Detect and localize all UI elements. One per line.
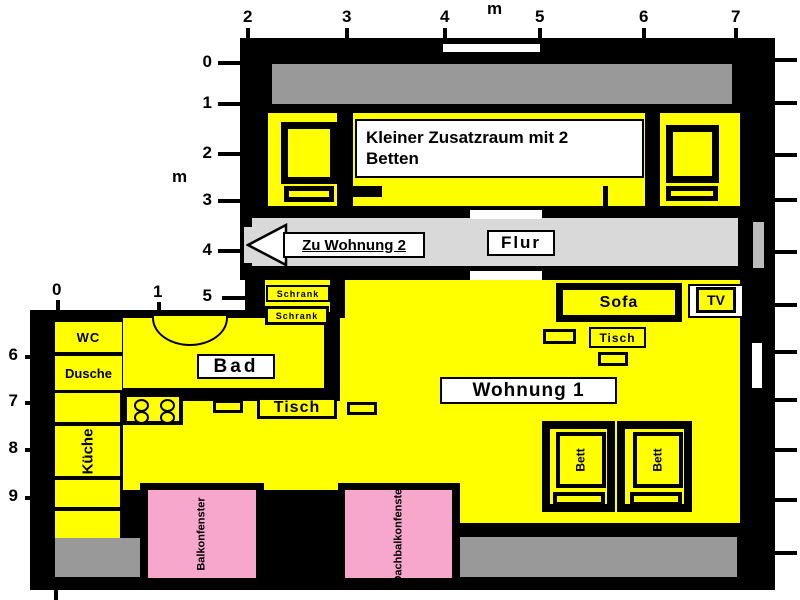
ruler-right-tick	[775, 303, 797, 307]
room-wc-label: WC	[77, 330, 101, 345]
living-table: Tisch	[589, 327, 646, 348]
extra-room-pillow-left	[284, 186, 334, 202]
ruler-left-tick	[218, 102, 242, 106]
ruler-left-1: 1	[192, 94, 212, 112]
ruler-left-tick	[218, 152, 242, 156]
dining-table-label: Tisch	[274, 399, 321, 417]
ruler-top-tick	[642, 28, 646, 42]
living-chair	[543, 329, 576, 344]
ruler-right-tick	[775, 58, 797, 62]
ruler-top-tick	[443, 28, 447, 42]
wardrobe-2-label: Schrank	[276, 311, 319, 321]
upper-terrace	[272, 64, 732, 104]
extra-room-label-text: Kleiner Zusatzraum mit 2 Betten	[366, 128, 568, 168]
ruler-right-tick	[775, 350, 797, 354]
ruler-top-unit: m	[487, 0, 502, 18]
ruler-right-tick	[775, 250, 797, 254]
ruler-left-tick	[218, 249, 242, 253]
apartment-title-box: Wohnung 1	[440, 377, 617, 404]
ruler-left-7: 7	[2, 392, 18, 410]
ruler-top-tick	[246, 28, 250, 42]
dining-table: Tisch	[257, 397, 337, 419]
ruler-top-7: 7	[731, 8, 740, 26]
room-shower-label: Dusche	[65, 366, 112, 381]
ruler-right-tick	[775, 153, 797, 157]
apartment-title: Wohnung 1	[472, 380, 584, 402]
ruler-left-0: 0	[192, 53, 212, 71]
bed-1: Bett	[542, 421, 615, 512]
ruler-left-5: 5	[192, 287, 212, 305]
floor-plan: m 2 3 4 5 6 7 m 0 1 2 3 4 5 6 7 8 9 0 1	[0, 0, 800, 600]
extra-room-divider-left	[337, 113, 353, 206]
ruler-top-tick	[345, 28, 349, 42]
right-wall-window	[752, 343, 762, 388]
sofa: Sofa	[556, 283, 682, 322]
ruler-left-unit: m	[172, 168, 187, 186]
dining-chair	[347, 402, 377, 415]
extra-room-label: Kleiner Zusatzraum mit 2 Betten	[355, 119, 644, 178]
exit-label: Zu Wohnung 2	[283, 232, 425, 258]
door-jamb	[353, 186, 382, 197]
roof-balcony-window: Dachbalkonfenster	[345, 490, 452, 578]
wardrobe-2: Schrank	[265, 306, 329, 325]
room-bath-label: Bad	[214, 356, 259, 378]
kitchen-counter	[55, 511, 120, 538]
kitchen-counter	[55, 393, 120, 422]
ruler-inner-tick	[56, 300, 60, 310]
roof-balcony-window-label: Dachbalkonfenster	[393, 484, 405, 583]
ruler-left-tick	[222, 296, 246, 300]
ruler-inner-tick	[157, 302, 161, 312]
ruler-right-tick	[775, 198, 797, 202]
bed-1-label: Bett	[574, 448, 588, 471]
ruler-left-tick	[25, 355, 45, 359]
burner-icon	[134, 411, 149, 424]
ruler-right-tick	[775, 398, 797, 402]
stove	[123, 393, 183, 425]
balcony-strip-right	[458, 537, 737, 577]
tv-label: TV	[707, 292, 725, 308]
ruler-top-tick	[734, 28, 738, 42]
door-jamb	[603, 186, 608, 206]
ruler-left-4: 4	[192, 241, 212, 259]
ruler-top-5: 5	[535, 8, 544, 26]
ruler-top-6: 6	[639, 8, 648, 26]
corridor-door-top	[470, 210, 542, 219]
ruler-left-tick	[218, 61, 242, 65]
extra-room-pillow-right	[666, 186, 718, 201]
ruler-left-3: 3	[192, 191, 212, 209]
ruler-top-3: 3	[342, 8, 351, 26]
ruler-left-2: 2	[192, 144, 212, 162]
room-shower: Dusche	[55, 356, 122, 390]
balcony-window: Balkonfenster	[148, 490, 256, 578]
balcony-window-label: Balkonfenster	[196, 497, 208, 570]
extra-room-bed-right	[666, 125, 719, 183]
bed-2: Bett	[617, 421, 692, 512]
ruler-top-tick	[538, 28, 542, 42]
ruler-left-tick	[25, 401, 45, 405]
top-wall-window	[443, 44, 540, 52]
bed-2-pillow	[630, 492, 682, 506]
ruler-left-6: 6	[2, 346, 18, 364]
living-chair	[598, 352, 628, 366]
room-bath-label-box: Bad	[197, 354, 275, 379]
dining-chair	[213, 400, 243, 413]
wardrobe-1-label: Schrank	[277, 289, 320, 299]
living-table-label: Tisch	[599, 331, 635, 345]
room-kitchen-label: Küche	[79, 428, 96, 474]
bed-2-label: Bett	[651, 448, 665, 471]
ruler-left-8: 8	[2, 439, 18, 457]
ruler-left-tick	[218, 199, 242, 203]
burner-icon	[160, 411, 175, 424]
corridor-right-window	[753, 222, 764, 268]
ruler-right-tick	[775, 101, 797, 105]
kitchen-counter	[55, 480, 120, 507]
balcony-strip-left	[55, 538, 140, 577]
corridor-label: Flur	[487, 230, 555, 256]
wardrobe-1: Schrank	[266, 285, 330, 302]
ruler-top-2: 2	[243, 8, 252, 26]
ruler-inner-1: 1	[153, 283, 162, 301]
sofa-label: Sofa	[600, 294, 639, 312]
ruler-bottom-tick	[54, 590, 58, 600]
bed-1-mattress: Bett	[556, 432, 606, 488]
corridor-door-bottom	[470, 271, 542, 280]
ruler-left-9: 9	[2, 487, 18, 505]
ruler-right-tick	[775, 448, 797, 452]
ruler-right-tick	[775, 551, 797, 555]
ruler-left-tick	[25, 448, 45, 452]
ruler-left-tick	[25, 496, 45, 500]
bed-1-pillow	[553, 492, 605, 506]
extra-room-divider-right	[645, 113, 660, 206]
ruler-top-4: 4	[440, 8, 449, 26]
ruler-right-tick	[775, 498, 797, 502]
room-wc: WC	[55, 322, 122, 352]
tv: TV	[696, 287, 736, 313]
extra-room-bed-left	[281, 122, 337, 184]
bed-2-mattress: Bett	[633, 432, 683, 488]
exit-label-text: Zu Wohnung 2	[302, 237, 406, 254]
ruler-inner-0: 0	[52, 281, 61, 299]
room-kitchen: Küche	[55, 426, 120, 476]
corridor-label-text: Flur	[501, 233, 541, 253]
